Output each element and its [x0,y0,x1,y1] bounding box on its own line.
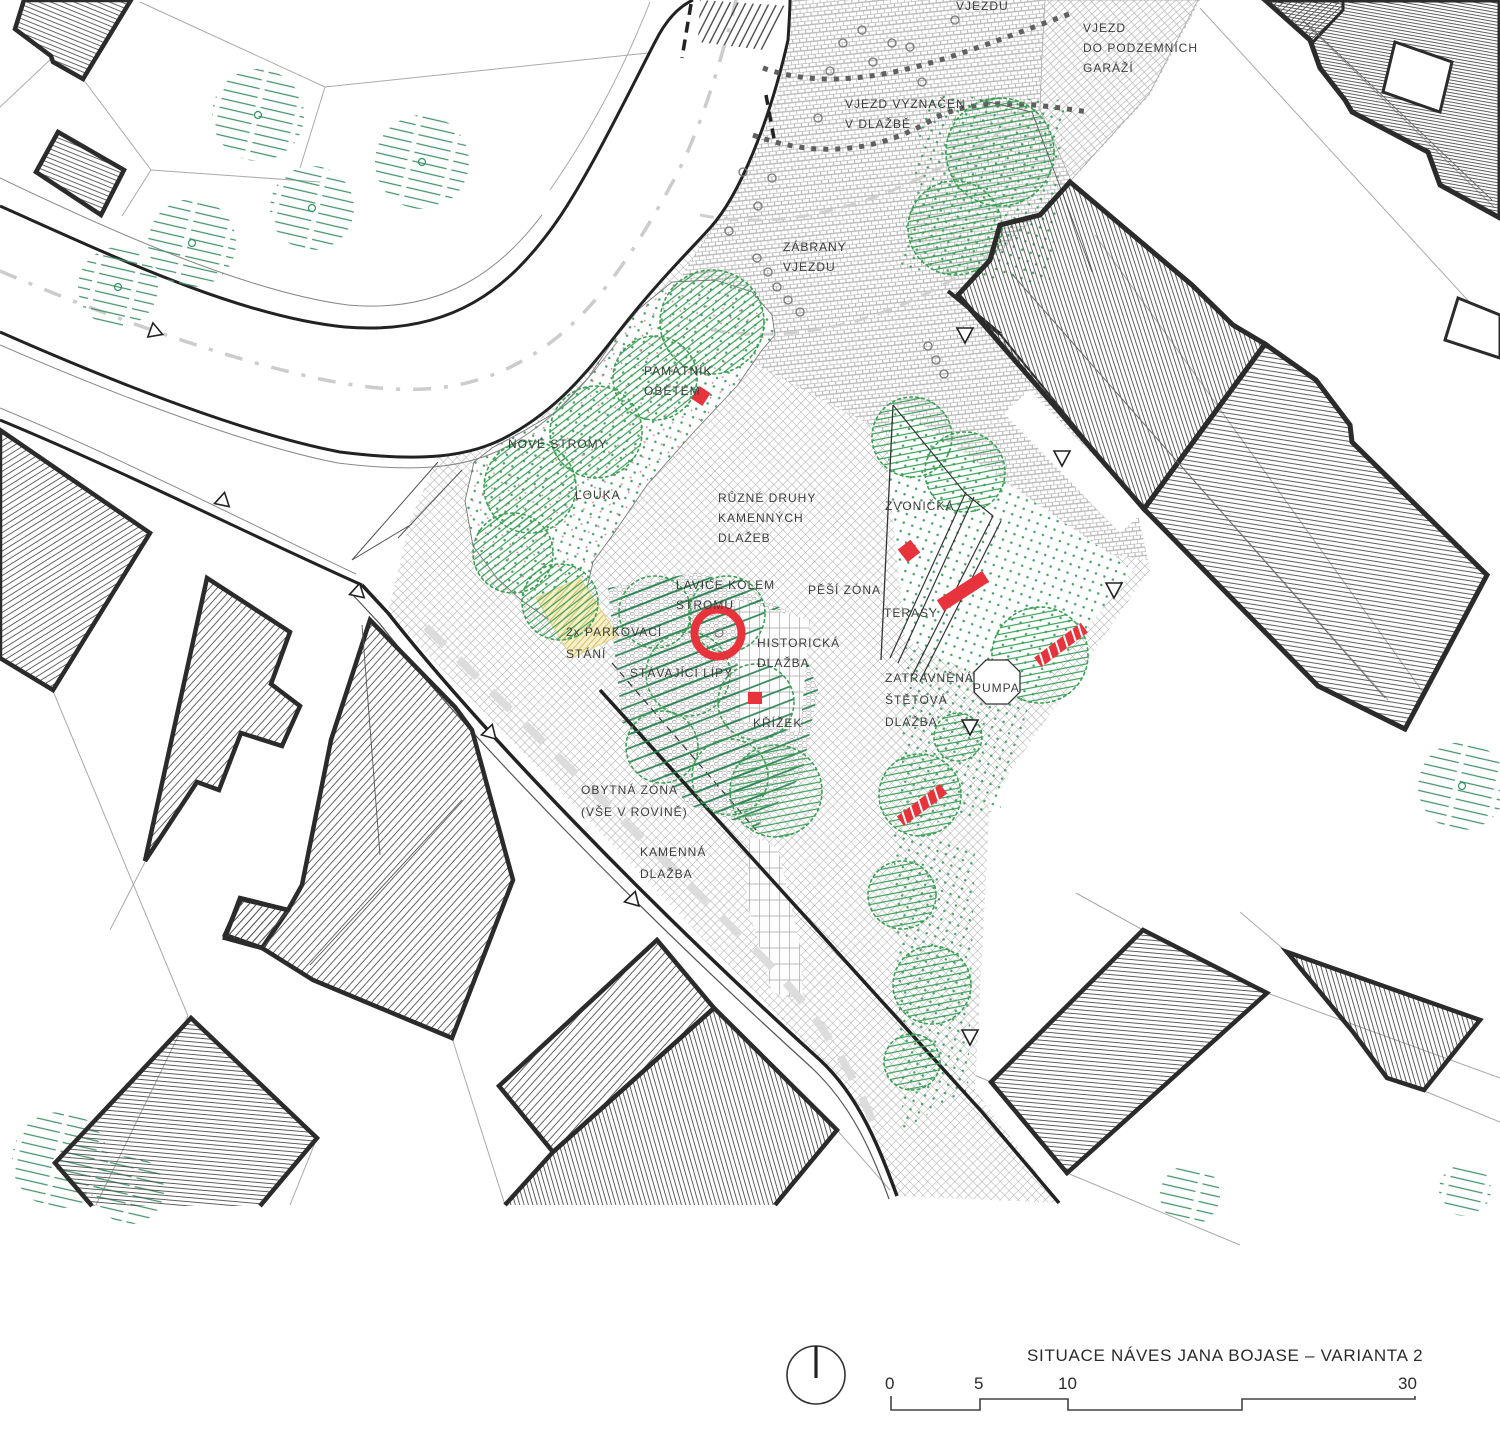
svg-text:2x PARKOVACÍ: 2x PARKOVACÍ [566,624,662,639]
svg-text:STÁNÍ: STÁNÍ [566,646,606,661]
svg-text:VJEZDU: VJEZDU [956,0,1009,13]
svg-text:DLAŽBA: DLAŽBA [640,866,693,881]
svg-text:KAMENNÁ: KAMENNÁ [640,844,706,859]
svg-text:DLAŽBA: DLAŽBA [885,714,938,729]
svg-text:KŘÍŽEK: KŘÍŽEK [753,715,802,730]
svg-text:DLAŽBA: DLAŽBA [757,655,810,670]
svg-text:STROMU: STROMU [676,598,734,612]
svg-text:VJEZDU: VJEZDU [783,260,836,274]
svg-text:LOUKA: LOUKA [575,488,621,502]
svg-text:NOVÉ STROMY: NOVÉ STROMY [508,436,608,451]
svg-text:DLAŽEB: DLAŽEB [718,530,771,545]
svg-text:KAMENNÝCH: KAMENNÝCH [718,510,804,525]
svg-text:RŮZNÉ DRUHY: RŮZNÉ DRUHY [718,490,816,505]
svg-text:10: 10 [1058,1374,1077,1393]
svg-text:VJEZD VYZNAČEN: VJEZD VYZNAČEN [845,96,966,111]
svg-text:5: 5 [974,1374,983,1393]
svg-text:0: 0 [885,1374,894,1393]
svg-text:OBYTNÁ ZÓNA: OBYTNÁ ZÓNA [581,782,678,797]
svg-text:ŠTĚTOVÁ: ŠTĚTOVÁ [885,692,948,707]
svg-text:VJEZD: VJEZD [1083,21,1126,35]
svg-text:HISTORICKÁ: HISTORICKÁ [757,635,840,650]
svg-text:SITUACE NÁVES JANA BOJASE – VA: SITUACE NÁVES JANA BOJASE – VARIANTA 2 [1027,1346,1423,1365]
svg-text:ZÁBRANY: ZÁBRANY [783,239,847,254]
svg-text:DO PODZEMNÍCH: DO PODZEMNÍCH [1083,40,1198,55]
svg-text:PĚŠÍ ZÓNA: PĚŠÍ ZÓNA [808,582,881,597]
svg-text:(VŠE V ROVINĚ): (VŠE V ROVINĚ) [581,804,688,819]
svg-text:TERASY: TERASY [884,606,938,620]
svg-text:STÁVAJÍCÍ LÍPY: STÁVAJÍCÍ LÍPY [630,665,733,680]
svg-text:OBĚTEM: OBĚTEM [644,383,701,398]
svg-text:PAMÁTNÍK: PAMÁTNÍK [644,363,712,378]
svg-text:PUMPA: PUMPA [973,681,1020,695]
svg-text:V DLAŽBĚ: V DLAŽBĚ [845,116,911,131]
svg-text:ZVONIČKA: ZVONIČKA [885,498,954,513]
svg-text:LAVICE KOLEM: LAVICE KOLEM [676,578,775,592]
svg-text:ZATRAVNĚNÁ: ZATRAVNĚNÁ [885,670,974,685]
svg-text:GARÁŽÍ: GARÁŽÍ [1083,60,1134,75]
svg-text:30: 30 [1398,1374,1417,1393]
